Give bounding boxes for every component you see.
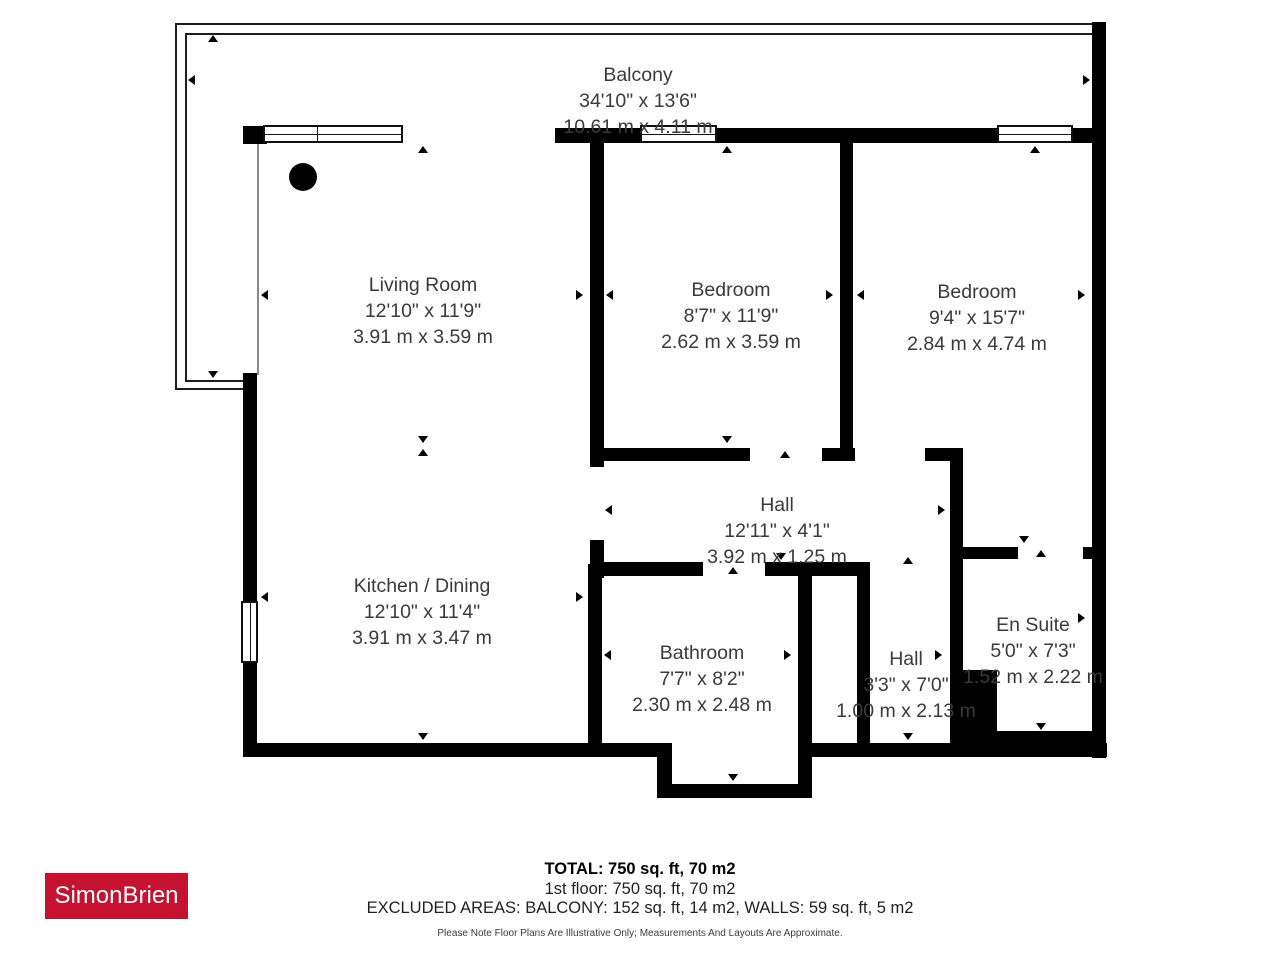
room-label-bedroom-1: Bedroom 8'7" x 11'9" 2.62 m x 3.59 m	[661, 277, 801, 355]
wall-living-divider	[590, 143, 604, 467]
dimension-arrow	[208, 35, 218, 42]
dimension-arrow	[576, 290, 583, 300]
balcony-rail-bottom-inner	[185, 380, 245, 382]
window-pane-line	[999, 134, 1071, 135]
dimension-arrow	[418, 449, 428, 456]
balcony-rail-top-outer	[175, 23, 1092, 25]
dimension-arrow	[1030, 146, 1040, 153]
window-pane-line	[250, 603, 251, 661]
room-imperial: 3'3" x 7'0"	[836, 672, 976, 698]
dimension-arrow	[722, 146, 732, 153]
wall-top-c	[1073, 128, 1092, 143]
room-metric: 10.61 m x 4.11 m	[563, 114, 712, 140]
living-room-window	[263, 125, 403, 143]
dimension-arrow	[1036, 550, 1046, 557]
room-imperial: 9'4" x 15'7"	[907, 305, 1047, 331]
window-frame-divider	[317, 127, 318, 141]
wall-bedroom-divider	[840, 143, 853, 448]
room-metric: 2.62 m x 3.59 m	[661, 329, 801, 355]
agency-logo-text: SimonBrien	[54, 882, 178, 910]
wall-bathroom-right	[798, 564, 812, 798]
dimension-arrow	[1078, 290, 1085, 300]
disclaimer-text: Please Note Floor Plans Are Illustrative…	[0, 928, 1280, 939]
room-imperial: 7'7" x 8'2"	[632, 666, 772, 692]
room-name: Kitchen / Dining	[352, 573, 492, 599]
wall-ensuite-top-a	[962, 547, 1018, 559]
dimension-arrow	[857, 290, 864, 300]
dimension-arrow	[605, 505, 612, 515]
dimension-arrow	[208, 371, 218, 378]
room-name: Hall	[836, 646, 976, 672]
room-metric: 3.91 m x 3.47 m	[352, 625, 492, 651]
room-label-hall-small: Hall 3'3" x 7'0" 1.00 m x 2.13 m	[836, 646, 976, 724]
wall-bottom-left	[243, 743, 672, 757]
dimension-arrow	[261, 592, 268, 602]
balcony-rail-bottom-outer	[175, 388, 245, 390]
excluded-area-text: EXCLUDED AREAS: BALCONY: 152 sq. ft, 14 …	[0, 899, 1280, 918]
dimension-arrow	[188, 75, 195, 85]
dimension-arrow	[576, 592, 583, 602]
dimension-arrow	[722, 436, 732, 443]
room-name: Bathroom	[632, 640, 772, 666]
living-room-balcony-glazing	[257, 143, 259, 375]
balcony-rail-left-outer	[175, 23, 177, 390]
wall-bottom-right	[810, 743, 1107, 757]
room-imperial: 12'10" x 11'4"	[352, 599, 492, 625]
room-label-en-suite: En Suite 5'0" x 7'3" 1.52 m x 2.22 m	[963, 612, 1103, 690]
wall-ensuite-bottom	[997, 731, 1092, 744]
wall-bathroom-left	[588, 564, 602, 757]
room-name: En Suite	[963, 612, 1103, 638]
dimension-arrow	[938, 505, 945, 515]
dimension-arrow	[780, 451, 790, 458]
dimension-arrow	[826, 290, 833, 300]
room-metric: 1.00 m x 2.13 m	[836, 698, 976, 724]
room-name: Hall	[707, 492, 847, 518]
dimension-arrow	[954, 613, 961, 623]
dimension-arrow	[418, 146, 428, 153]
room-label-living-room: Living Room 12'10" x 11'9" 3.91 m x 3.59…	[353, 272, 493, 350]
wall-ensuite-top-b	[1083, 547, 1093, 559]
wall-left-mid	[243, 373, 257, 603]
bedroom2-window	[997, 125, 1073, 143]
room-imperial: 12'10" x 11'9"	[353, 298, 493, 324]
total-area-text: TOTAL: 750 sq. ft, 70 m2	[0, 860, 1280, 879]
wall-hall-top-a	[602, 448, 750, 461]
room-label-bathroom: Bathroom 7'7" x 8'2" 2.30 m x 2.48 m	[632, 640, 772, 718]
room-imperial: 5'0" x 7'3"	[963, 638, 1103, 664]
balcony-rail-top-inner	[185, 33, 1092, 35]
kitchen-window	[241, 601, 258, 663]
room-name: Balcony	[563, 62, 712, 88]
room-label-balcony: Balcony 34'10" x 13'6" 10.61 m x 4.11 m	[563, 62, 712, 140]
structural-column-dot	[289, 163, 317, 191]
dimension-arrow	[1083, 75, 1090, 85]
dimension-arrow	[728, 774, 738, 781]
window-pane-line	[265, 134, 401, 135]
room-name: Bedroom	[661, 277, 801, 303]
dimension-arrow	[606, 290, 613, 300]
room-label-kitchen-dining: Kitchen / Dining 12'10" x 11'4" 3.91 m x…	[352, 573, 492, 651]
dimension-arrow	[418, 436, 428, 443]
agency-logo: SimonBrien	[45, 873, 188, 919]
room-label-bedroom-2: Bedroom 9'4" x 15'7" 2.84 m x 4.74 m	[907, 279, 1047, 357]
room-name: Living Room	[353, 272, 493, 298]
room-metric: 2.84 m x 4.74 m	[907, 331, 1047, 357]
dimension-arrow	[784, 650, 791, 660]
floor-area-text: 1st floor: 750 sq. ft, 70 m2	[0, 880, 1280, 899]
room-metric: 3.91 m x 3.59 m	[353, 324, 493, 350]
room-imperial: 8'7" x 11'9"	[661, 303, 801, 329]
dimension-arrow	[903, 557, 913, 564]
room-imperial: 34'10" x 13'6"	[563, 88, 712, 114]
wall-bathroom-top-a	[602, 562, 703, 576]
room-metric: 1.52 m x 2.22 m	[963, 664, 1103, 690]
wall-bathroom-bump-bottom	[657, 784, 810, 798]
dimension-arrow	[1036, 723, 1046, 730]
dimension-arrow	[1019, 536, 1029, 543]
room-name: Bedroom	[907, 279, 1047, 305]
room-label-hall: Hall 12'11" x 4'1" 3.92 m x 1.25 m	[707, 492, 847, 570]
floor-plan: Balcony 34'10" x 13'6" 10.61 m x 4.11 m …	[0, 0, 1280, 960]
room-imperial: 12'11" x 4'1"	[707, 518, 847, 544]
wall-hall-top-b	[822, 448, 855, 461]
room-metric: 2.30 m x 2.48 m	[632, 692, 772, 718]
dimension-arrow	[261, 290, 268, 300]
dimension-arrow	[418, 733, 428, 740]
wall-top-b	[717, 128, 997, 143]
dimension-arrow	[604, 650, 611, 660]
dimension-arrow	[903, 733, 913, 740]
room-metric: 3.92 m x 1.25 m	[707, 544, 847, 570]
balcony-rail-left-inner	[185, 33, 187, 382]
